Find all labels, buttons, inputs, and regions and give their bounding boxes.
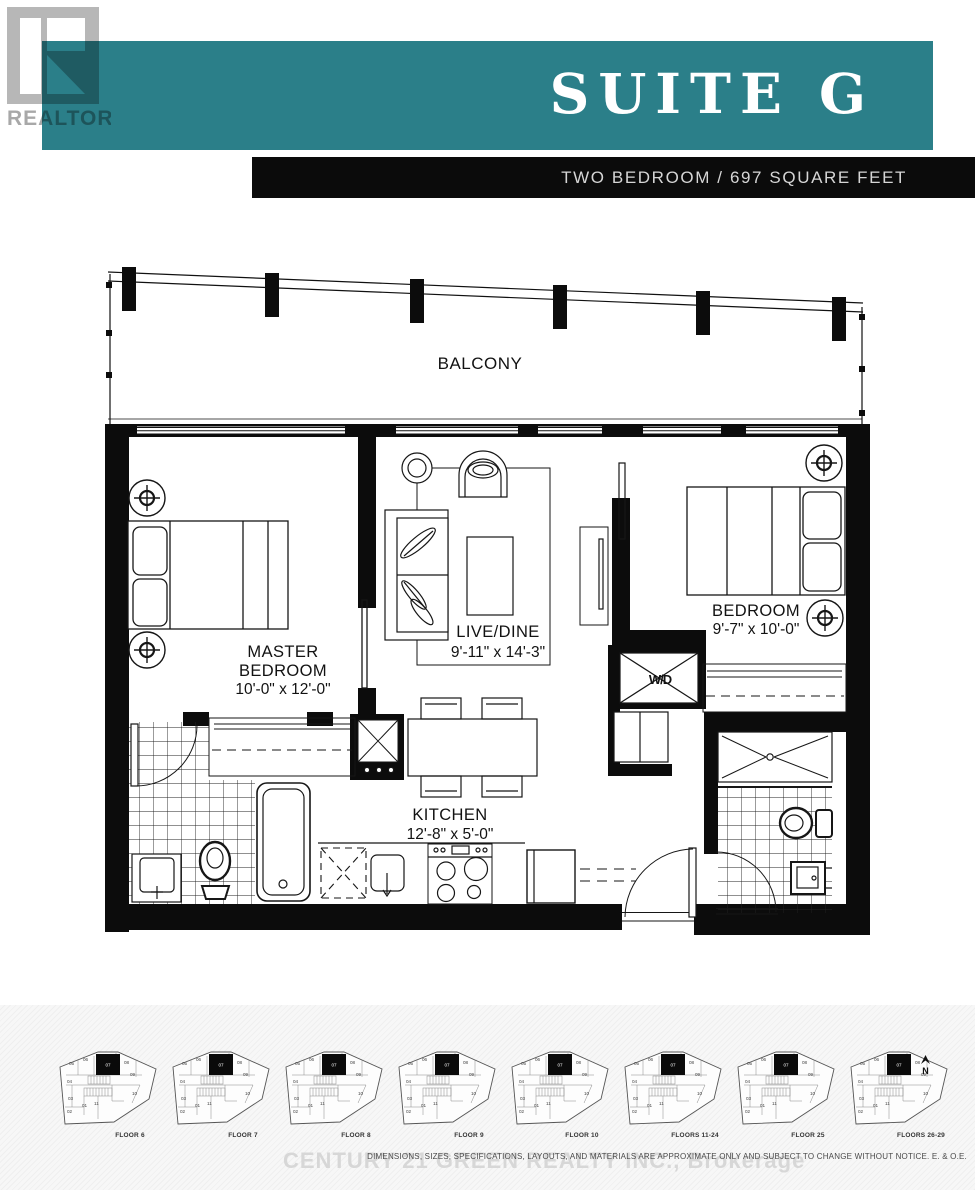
bedroom-dims: 9'-7" x 10'-0" <box>713 621 800 638</box>
svg-text:FLOOR 8: FLOOR 8 <box>341 1132 371 1139</box>
disclaimer-text: DIMENSIONS, SIZES, SPECIFICATIONS, LAYOU… <box>367 1152 967 1161</box>
tv-console <box>580 527 608 625</box>
vanity-sink <box>132 854 181 902</box>
wd-label: W/D <box>649 672 672 687</box>
ceiling-light-icon <box>129 632 165 668</box>
bathtub <box>257 783 310 901</box>
dishwasher <box>321 848 366 898</box>
ceiling-light-icon <box>807 600 843 636</box>
bathroom-second <box>716 732 832 914</box>
flyer-page: SUITE G TWO BEDROOM / 697 SQUARE FEET RE… <box>0 0 975 1200</box>
master-bed <box>128 521 288 629</box>
realtor-logo-text: REALTOR® <box>7 107 111 130</box>
entry-door <box>622 848 696 921</box>
svg-text:FLOOR 6: FLOOR 6 <box>115 1132 145 1139</box>
fridge <box>527 850 575 903</box>
keyplan-floor-6: FLOOR 6 <box>60 1052 156 1139</box>
kitchen-name: KITCHEN <box>412 806 487 824</box>
bathroom-main <box>129 722 310 904</box>
master-closet <box>209 718 355 776</box>
keyplan-floor-10: FLOOR 10 <box>512 1052 608 1139</box>
linen-closet <box>614 712 668 762</box>
sofa <box>385 510 448 640</box>
kitchen-dims: 12'-8" x 5'-0" <box>407 826 494 843</box>
pedestal-sink <box>791 862 832 894</box>
coffee-table <box>467 537 513 615</box>
keyplan-floors-11-24: FLOORS 11-24 <box>625 1052 721 1139</box>
living-dims: 9'-11" x 14'-3" <box>451 644 545 661</box>
entry-closet-dashes <box>580 869 636 881</box>
ceiling-light-icon <box>806 445 842 481</box>
keyplan-floors-26-29: FLOORS 26-29 <box>851 1052 947 1139</box>
suite-banner: SUITE G <box>42 41 933 150</box>
armchair <box>459 451 507 497</box>
keyplan-floor-8: FLOOR 8 <box>286 1052 382 1139</box>
balcony-label: BALCONY <box>438 354 523 373</box>
toilet <box>780 808 832 838</box>
bed <box>687 487 845 595</box>
shower <box>718 732 832 787</box>
second-bedroom: BEDROOM 9'-7" x 10'-0" <box>687 445 846 712</box>
master-dims: 10'-0" x 12'-0" <box>235 681 330 698</box>
svg-text:FLOORS 26-29: FLOORS 26-29 <box>897 1132 945 1139</box>
stove <box>428 844 492 904</box>
master-sliding-door <box>362 600 367 688</box>
realtor-logo: REALTOR® <box>7 7 111 133</box>
master-name-line1: MASTER <box>247 643 318 661</box>
ceiling-light-icon <box>129 480 165 516</box>
kitchen-sink <box>371 855 404 896</box>
keyplan-floor-7: FLOOR 7 <box>173 1052 269 1139</box>
balcony: BALCONY <box>106 267 865 424</box>
living-room: LIVE/DINE 9'-11" x 14'-3" <box>385 451 625 665</box>
subtitle-banner: TWO BEDROOM / 697 SQUARE FEET <box>252 157 975 198</box>
svg-text:N: N <box>922 1066 929 1076</box>
toilet <box>200 842 230 899</box>
svg-text:FLOOR 7: FLOOR 7 <box>228 1132 258 1139</box>
living-name: LIVE/DINE <box>456 623 539 641</box>
keyplans: 07 05 06 08 09 10 11 01 02 03 04 FLOOR 6… <box>0 1027 975 1157</box>
floorplan: BALCONY <box>0 240 975 980</box>
master-name-line2: BEDROOM <box>239 662 327 680</box>
svg-text:FLOOR 25: FLOOR 25 <box>791 1132 825 1139</box>
keyplan-floor-25: FLOOR 25 <box>738 1052 834 1139</box>
suite-title: SUITE G <box>550 60 875 125</box>
svg-text:FLOORS 11-24: FLOORS 11-24 <box>671 1132 719 1139</box>
svg-text:FLOOR 10: FLOOR 10 <box>565 1132 599 1139</box>
keyplan-floor-9: FLOOR 9 <box>399 1052 495 1139</box>
bedroom-name: BEDROOM <box>712 602 800 620</box>
dining-table <box>408 698 537 797</box>
balcony-posts <box>106 267 865 416</box>
bedroom-closet <box>703 664 846 712</box>
ceiling-light-icon <box>402 453 432 483</box>
svg-text:FLOOR 9: FLOOR 9 <box>454 1132 484 1139</box>
subtitle-text: TWO BEDROOM / 697 SQUARE FEET <box>561 168 975 188</box>
